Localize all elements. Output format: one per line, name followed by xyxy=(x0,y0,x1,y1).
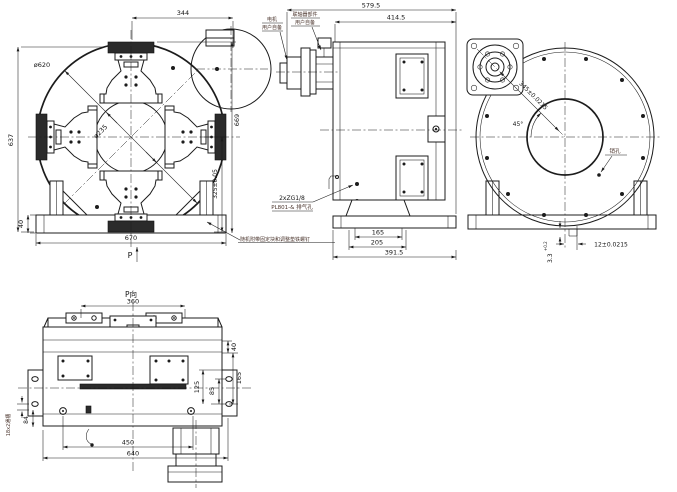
label-motor-line1: 电机 xyxy=(267,16,277,23)
label-motor-line2: 用户自备 xyxy=(262,24,282,31)
front-view: 344 637 ø620 ø235 325±0.05 669 670 40 P xyxy=(7,9,335,262)
front-note: 随机附带固定块和调整垫铁螺钉 xyxy=(240,236,310,243)
label-slot: 18x2通槽 xyxy=(5,414,12,437)
dim-bottom-450: 450 xyxy=(122,439,134,447)
dim-rear-345: 345±0.0215 xyxy=(517,80,549,112)
dim-bottom-125: 125 xyxy=(193,381,201,393)
dim-side-205: 205 xyxy=(371,239,383,247)
rear-base xyxy=(468,181,656,236)
dim-rear-33-tol: +0.2 xyxy=(543,241,548,251)
drawing-svg: 344 637 ø620 ø235 325±0.05 669 670 40 P xyxy=(0,0,677,492)
dim-rear-12: 12±0.0215 xyxy=(594,242,628,249)
dim-bottom-165: 165 xyxy=(235,372,243,384)
side-view: 电机 用户自备 联轴器部件 用户自备 2xZG1/8 PL801-& 排气孔 5… xyxy=(262,2,462,261)
side-motor xyxy=(280,38,333,96)
dim-bottom-640: 640 xyxy=(127,450,139,458)
dim-side-4145: 414.5 xyxy=(387,14,406,22)
dim-front-325: 325±0.05 xyxy=(212,169,219,199)
dim-rear-45deg: 45° xyxy=(513,121,524,128)
label-coupling-line2: 用户自备 xyxy=(295,19,315,26)
bottom-view: P向 xyxy=(5,289,252,488)
label-coupling-line1: 联轴器部件 xyxy=(292,11,317,18)
dim-front-344: 344 xyxy=(177,9,189,17)
dim-front-637: 637 xyxy=(7,134,15,146)
dim-bottom-40: 40 xyxy=(230,343,238,351)
dim-bottom-85: 85 xyxy=(208,387,216,395)
rear-dimensions: 345±0.0215 45° 12±0.0215 3.3 +0.2 销孔 xyxy=(500,72,628,263)
dim-bottom-360: 360 xyxy=(127,298,139,306)
dim-front-dia620: ø620 xyxy=(34,61,50,69)
view-arrow-p: P xyxy=(128,251,133,260)
side-body xyxy=(329,42,456,228)
label-port-line2: PL801-& 排气孔 xyxy=(271,203,313,211)
dim-side-165: 165 xyxy=(372,229,384,237)
dim-front-669: 669 xyxy=(233,114,241,126)
dim-side-3915: 391.5 xyxy=(385,249,404,257)
label-port-line1: 2xZG1/8 xyxy=(279,195,305,202)
engineering-drawing-canvas: 344 637 ø620 ø235 325±0.05 669 670 40 P xyxy=(0,0,677,492)
dim-front-670: 670 xyxy=(125,234,137,242)
dim-side-5795: 579.5 xyxy=(362,2,381,10)
dim-rear-33: 3.3 xyxy=(547,253,554,263)
dim-bottom-84: 84 xyxy=(23,416,30,424)
dim-front-40: 40 xyxy=(17,220,25,228)
rear-view: 345±0.0215 45° 12±0.0215 3.3 +0.2 销孔 xyxy=(467,39,662,263)
bottom-motor-flange xyxy=(168,428,222,482)
label-pin-hole: 销孔 xyxy=(609,147,621,155)
